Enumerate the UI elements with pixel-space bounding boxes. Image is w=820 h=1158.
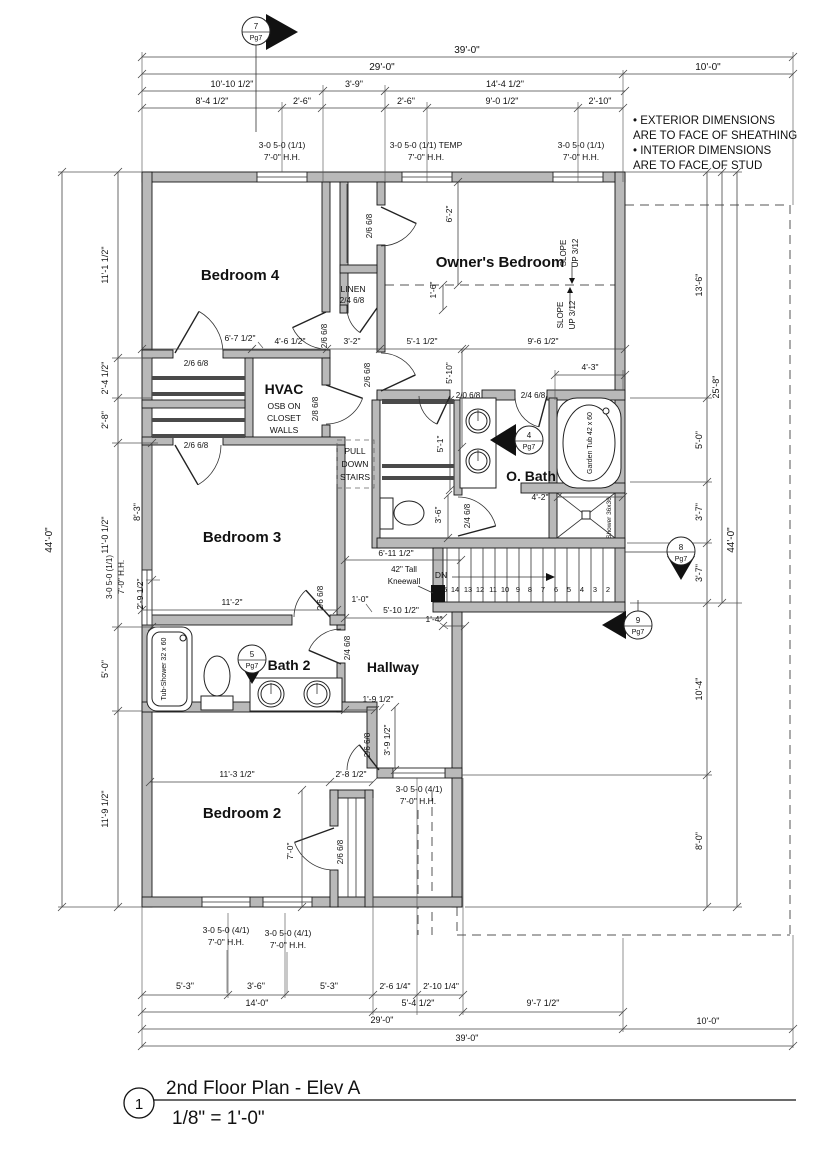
floor-plan-drawing: 12nd Floor Plan - Elev A1/8" = 1'-0"• EX…: [0, 0, 820, 1158]
stair-tread-number: 10: [501, 585, 509, 594]
detail-marker-page: Pg7: [246, 663, 259, 670]
note-line: ARE TO FACE OF STUD: [633, 160, 762, 172]
fixture-label-garden-tub: Garden Tub 42 x 60: [587, 412, 594, 474]
dimension-label: 29'-0": [369, 62, 395, 73]
window-tag: 7'-0" H.H.: [208, 937, 244, 947]
door-leaf: [175, 311, 199, 353]
dimension-label: 3'-6": [247, 981, 265, 991]
wall-segment: [377, 538, 625, 548]
dimension-label: 5'-3": [320, 981, 338, 991]
dimension-label: 5'-10": [444, 362, 454, 384]
dimension-label: 2'-6": [293, 96, 311, 106]
wall-segment: [330, 790, 338, 826]
closet-shelf: [152, 418, 245, 422]
door-tag: 2/6 6/8: [184, 441, 209, 450]
dimension-label: 1'-4": [426, 614, 443, 624]
door-tag: 2/6 6/8: [365, 213, 374, 238]
stairs-dn-label: DN: [435, 570, 447, 580]
dimension-label: 9'-7 1/2": [527, 998, 560, 1008]
dimension-label: 10'-4": [694, 678, 704, 701]
dimension-label: 10'-0": [695, 62, 721, 73]
wall-segment: [340, 265, 377, 273]
note-line: ARE TO FACE OF SHEATHING: [633, 130, 797, 142]
wall-segment: [142, 437, 173, 445]
door-tag: 2/0 6/8: [456, 391, 481, 400]
dimension-label: 2'-8": [100, 411, 110, 429]
dimension-label: 2'-9 1/2": [135, 578, 145, 609]
detail-marker-number: 7: [254, 22, 259, 31]
room-label-hvac: HVAC: [265, 381, 304, 397]
toilet-icon: [204, 656, 230, 696]
window-tag: 7'-0" H.H.: [270, 940, 306, 950]
dimension-label: 1'-9 1/2": [362, 694, 393, 704]
dimension-label: 3'-7": [694, 503, 704, 521]
dimension-label: 6'-11 1/2": [378, 548, 413, 558]
room-label-hallway: Hallway: [367, 659, 419, 675]
wall-segment: [142, 615, 292, 625]
wall-segment: [223, 437, 345, 445]
dimension-label: 3'-9 1/2": [382, 724, 392, 755]
door-tag: 2/4 6/8: [343, 635, 352, 660]
door-leaf: [381, 207, 416, 223]
kneewall-leader: [418, 586, 433, 593]
door-leaf: [360, 308, 377, 333]
dimension-label: 4'-2": [532, 492, 549, 502]
dimension-label: 5'-0": [694, 431, 704, 449]
wall-segment: [340, 305, 347, 313]
dimension-label: 5'-1": [435, 436, 445, 453]
hvac-note: WALLS: [270, 425, 299, 435]
room-label-owners-bath: O. Bath: [506, 468, 556, 484]
pull-down-stairs-note: PULL: [344, 446, 366, 456]
dimension-label: 4'-6 1/2": [274, 336, 305, 346]
door-swing-arc: [326, 398, 363, 424]
pull-down-stairs-note: STAIRS: [340, 472, 370, 482]
dimension-label: 44'-0": [44, 527, 55, 553]
dimension-label: 8'-0": [694, 832, 704, 850]
leader-line: [366, 604, 372, 612]
toilet-tank: [201, 696, 233, 710]
dimension-label: 1'-6": [428, 282, 438, 299]
detail-marker-number: 9: [636, 616, 641, 625]
window-tag: 3-0 5-0 (4/1): [203, 925, 250, 935]
door-leaf: [175, 445, 198, 485]
dimension-label: 6'-7 1/2": [224, 333, 255, 343]
dimension-label: 5'-3": [176, 981, 194, 991]
window-tag: 3-0 5-0 (1/1): [259, 140, 306, 150]
dimension-label: 5'-0": [100, 660, 110, 678]
dimension-label: 10'-0": [697, 1016, 720, 1026]
room-label-bedroom-3: Bedroom 3: [203, 529, 281, 546]
stair-tread-number: 3: [593, 585, 597, 594]
wall-segment: [433, 602, 625, 612]
door-tag: 2/6 6/8: [320, 323, 329, 348]
window-tag: 3-0 5-0 (4/1): [396, 784, 443, 794]
dimension-label: 8'-3": [132, 503, 142, 521]
labels-layer: 12nd Floor Plan - Elev A1/8" = 1'-0"• EX…: [44, 22, 797, 1129]
window-tag: 7'-0" H.H.: [563, 152, 599, 162]
door-tag: 2/6 6/8: [336, 839, 345, 864]
stair-tread-number: 15: [439, 585, 447, 594]
wall-segment: [365, 790, 373, 907]
wall-segment: [223, 350, 330, 358]
fixture-label-tub-shower: Tub-Shower 32 x 60: [161, 638, 168, 701]
dimension-label: 9'-0 1/2": [486, 96, 519, 106]
dimension-label: 1'-0": [352, 594, 369, 604]
closet-shelf: [152, 434, 245, 438]
window-tag: 7'-0" H.H.: [400, 796, 436, 806]
leader-line: [258, 342, 263, 348]
dimension-label: 5'-1 1/2": [406, 336, 437, 346]
hvac-note: CLOSET: [267, 413, 301, 423]
stair-tread-number: 4: [580, 585, 584, 594]
slope-note: UP 3/12: [571, 238, 580, 267]
dimension-label: 11'-9 1/2": [100, 790, 110, 827]
door-leaf: [326, 385, 363, 398]
window-tag: 7'-0" H.H.: [264, 152, 300, 162]
wall-segment: [322, 182, 330, 312]
dimension-label: 11'-3 1/2": [219, 769, 254, 779]
detail-marker-number: 4: [527, 431, 532, 440]
wall-segment: [322, 425, 330, 437]
floor-plan-sheet: 12nd Floor Plan - Elev A1/8" = 1'-0"• EX…: [0, 0, 820, 1158]
detail-number: 1: [135, 1096, 143, 1113]
fixture-label-shower: Shower 36x36: [606, 497, 613, 539]
dimension-label: 2'-8 1/2": [335, 769, 366, 779]
dimension-label: 29'-0": [371, 1015, 394, 1025]
wall-segment: [452, 612, 462, 907]
stair-tread-number: 12: [476, 585, 484, 594]
stair-tread-number: 13: [464, 585, 472, 594]
door-swing-arc: [515, 396, 539, 427]
wall-segment: [245, 358, 253, 437]
wall-segment: [142, 172, 152, 907]
dimension-label: 14'-4 1/2": [486, 79, 524, 89]
wall-segment: [322, 358, 330, 385]
door-swing-arc: [198, 445, 221, 485]
door-swing-arc: [347, 745, 359, 770]
window-tag: 3-0 5-0 (1/1): [558, 140, 605, 150]
slope-note: SLOPE: [556, 302, 565, 329]
kneewall-note: 42" Tall: [391, 565, 417, 574]
door-swing-arc: [295, 842, 335, 870]
dimension-label: 2'-4 1/2": [100, 362, 110, 395]
stair-tread-number: 9: [516, 585, 520, 594]
stair-tread-number: 7: [541, 585, 545, 594]
room-label-bedroom-4: Bedroom 4: [201, 267, 280, 284]
window-tag: 7'-0" H.H.: [408, 152, 444, 162]
door-leaf: [309, 650, 341, 664]
slope-arrow-up-icon: [567, 287, 573, 293]
stair-tread-number: 5: [567, 585, 571, 594]
wall-segment: [142, 172, 625, 182]
wall-segment: [337, 445, 345, 615]
toilet-tank: [380, 498, 393, 529]
pull-down-stairs-note: DOWN: [342, 459, 369, 469]
dimension-label: 39'-0": [456, 1033, 479, 1043]
dimension-label: 39'-0": [454, 45, 480, 56]
drawing-scale: 1/8" = 1'-0": [172, 1108, 265, 1129]
detail-marker-page: Pg7: [523, 444, 536, 451]
dimension-label: 6'-2": [444, 206, 454, 223]
wall-segment: [372, 400, 380, 548]
slope-note: SLOPE: [559, 240, 568, 267]
door-swing-arc: [347, 308, 360, 333]
door-tag: 2/6 6/8: [184, 359, 209, 368]
door-tag: 2/4 6/8: [521, 391, 546, 400]
dimension-label: 3'-7": [694, 564, 704, 582]
window-tag: 3-0 5-0 (1/1) TEMP: [390, 140, 463, 150]
door-tag: 2/4 6/8: [340, 296, 365, 305]
dimension-label: 3'-9": [345, 79, 363, 89]
wall-segment: [377, 182, 385, 205]
note-line: • INTERIOR DIMENSIONS: [633, 145, 772, 157]
tub-faucet-icon: [603, 408, 609, 414]
room-label-bedroom-2: Bedroom 2: [203, 805, 281, 822]
kneewall-note: Kneewall: [388, 577, 421, 586]
door-swing-arc: [199, 311, 223, 353]
closet-shelf: [152, 392, 245, 396]
dimension-label: 2'-10": [589, 96, 612, 106]
note-line: • EXTERIOR DIMENSIONS: [633, 115, 775, 127]
dimension-label: 9'-6 1/2": [527, 336, 558, 346]
door-leaf: [381, 375, 415, 391]
stair-tread-number: 14: [451, 585, 459, 594]
dimension-label: 2'-10 1/4": [423, 981, 459, 991]
slope-arrow-down-icon: [569, 278, 575, 284]
dimension-label: 3'-2": [344, 336, 361, 346]
door-swing-arc: [381, 224, 416, 247]
door-tag: 2/6 6/8: [363, 732, 372, 757]
dimension-label: 14'-0": [246, 998, 269, 1008]
dimension-label: 25'-8": [711, 376, 721, 399]
dimension-label: 10'-10 1/2": [211, 79, 254, 89]
wall-segment: [330, 870, 338, 907]
leader-line: [379, 704, 384, 710]
room-label-owners-bedroom: Owner's Bedroom: [436, 254, 565, 271]
tub-faucet-icon: [180, 635, 186, 641]
drawing-title: 2nd Floor Plan - Elev A: [166, 1078, 361, 1099]
door-leaf: [539, 396, 547, 427]
slope-note: UP 3/12: [568, 300, 577, 329]
detail-marker-page: Pg7: [632, 629, 645, 636]
dimension-label: 13'-6": [694, 274, 704, 297]
marker-flag-icon: [266, 14, 298, 50]
wall-segment: [377, 390, 450, 400]
dimension-label: 5'-4 1/2": [402, 998, 435, 1008]
marker-flag-icon: [602, 611, 626, 639]
dimension-label: 4'-3": [582, 362, 599, 372]
dimension-label: 2'-6 1/4": [379, 981, 410, 991]
window-tag: 7'-0" H.H.: [117, 560, 126, 594]
dimension-label: 7'-0": [285, 843, 295, 860]
window-tag: 3-0 5-0 (1/1): [105, 555, 114, 599]
door-tag: 2/6 6/8: [316, 585, 325, 610]
closet-shelf: [152, 376, 245, 380]
stair-tread-number: 11: [489, 585, 497, 594]
dimension-label: 3'-6": [433, 507, 443, 524]
dimension-label: 2'-6": [397, 96, 415, 106]
detail-marker-number: 5: [250, 650, 255, 659]
door-swing-arc: [381, 353, 415, 375]
toilet-icon: [394, 501, 424, 525]
door-leaf: [295, 828, 334, 842]
detail-marker-page: Pg7: [675, 556, 688, 563]
room-label-bath-2: Bath 2: [268, 657, 311, 673]
door-tag: 2/6 6/8: [363, 362, 372, 387]
closet-shelf: [382, 464, 454, 468]
dimension-label: 44'-0": [726, 527, 737, 553]
stairs-dn-arrowhead: [546, 573, 555, 581]
hvac-note: OSB ON: [267, 401, 300, 411]
door-swing-arc: [309, 629, 341, 650]
wall-segment: [445, 768, 462, 778]
dimension-label: 11'-0 1/2": [100, 516, 110, 553]
stair-tread-number: 2: [606, 585, 610, 594]
stair-tread-number: 6: [554, 585, 558, 594]
closet-shelf: [382, 476, 454, 480]
detail-marker-number: 8: [679, 543, 684, 552]
stair-tread-number: 8: [528, 585, 532, 594]
wall-segment: [142, 350, 173, 358]
dimension-label: 11'-1 1/2": [100, 246, 110, 283]
door-tag: 2/8 6/8: [311, 396, 320, 421]
closet-shelf: [382, 399, 454, 404]
dimension-label: 8'-4 1/2": [196, 96, 229, 106]
detail-marker-page: Pg7: [250, 35, 263, 42]
door-tag: 2/4 6/8: [463, 503, 472, 528]
window-tag: 3-0 5-0 (4/1): [265, 928, 312, 938]
door-swing-arc: [294, 590, 306, 617]
shower-drain-icon: [582, 511, 590, 519]
wall-segment: [377, 245, 385, 352]
room-label-linen: LINEN: [340, 284, 365, 294]
wall-segment: [142, 400, 245, 408]
dimension-label: 11'-2": [221, 597, 242, 607]
dimension-label: 5'-10 1/2": [383, 605, 419, 615]
